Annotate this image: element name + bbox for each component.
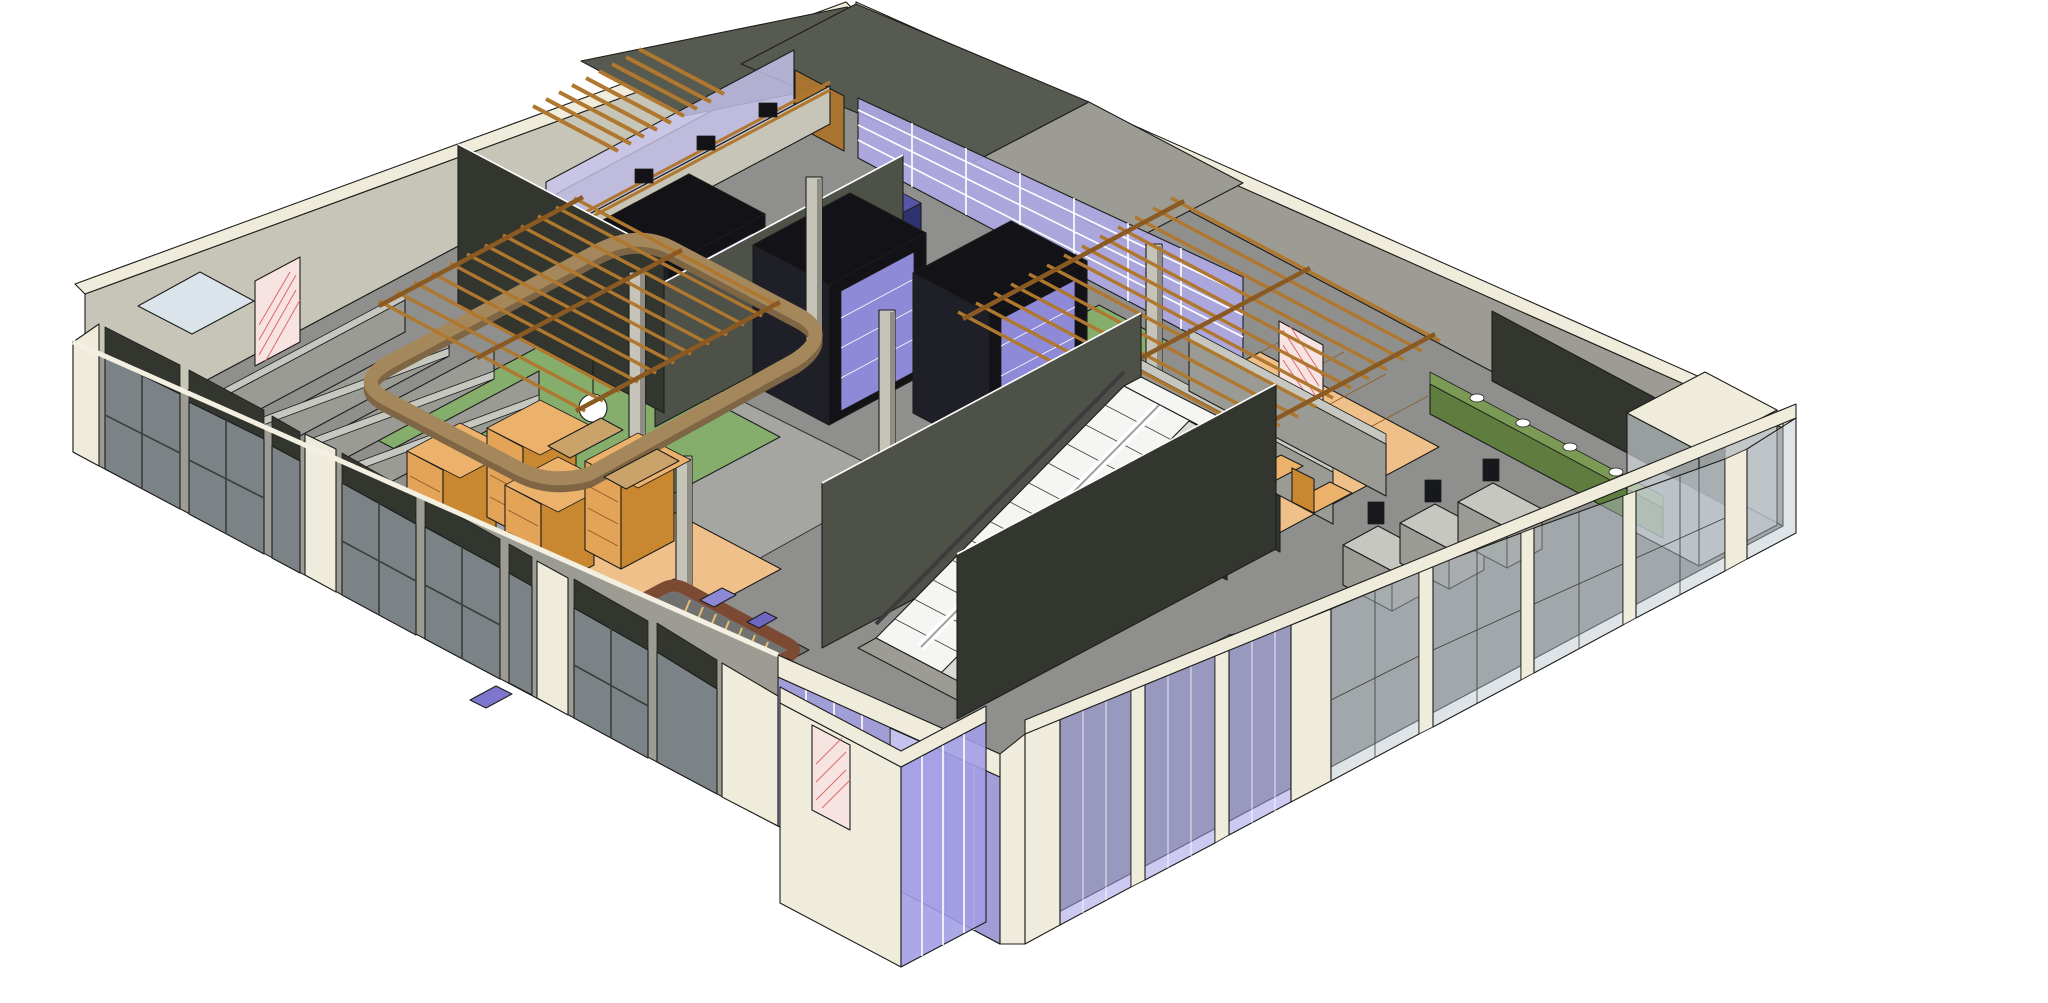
sink — [1516, 419, 1530, 427]
pos-monitor — [1368, 502, 1384, 524]
column — [629, 272, 645, 437]
south-corner-pier — [1000, 734, 1025, 944]
render-viewport — [0, 0, 2048, 1003]
pos-monitor — [1483, 459, 1499, 481]
sink — [1563, 443, 1577, 451]
se-pier — [1291, 609, 1331, 802]
sink — [1609, 468, 1623, 476]
pos-monitor — [1425, 480, 1441, 502]
se-pier — [1025, 719, 1060, 944]
building-render — [0, 0, 2048, 1003]
sink — [1470, 394, 1484, 402]
